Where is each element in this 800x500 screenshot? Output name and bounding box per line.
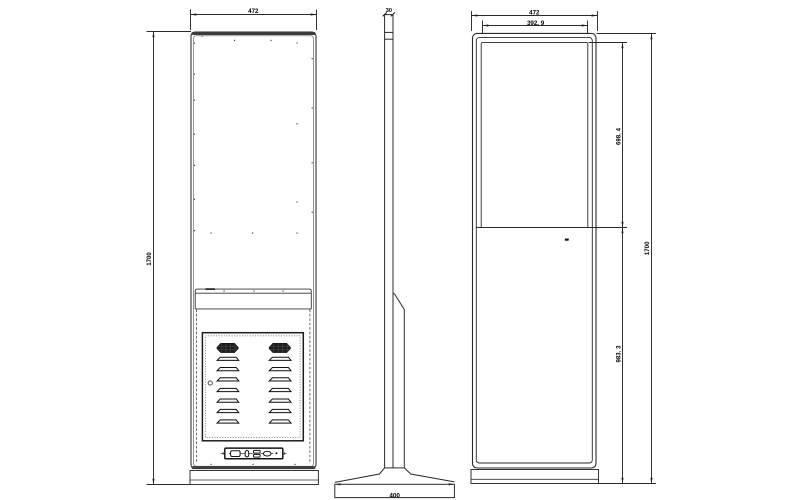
svg-text:1700: 1700 (146, 252, 153, 266)
svg-text:472: 472 (529, 10, 540, 17)
svg-text:698. 4: 698. 4 (616, 127, 623, 145)
svg-text:472: 472 (248, 8, 259, 15)
svg-text:392. 9: 392. 9 (527, 20, 545, 27)
svg-text:400: 400 (389, 492, 400, 499)
svg-text:1700: 1700 (644, 241, 651, 255)
svg-text:983. 3: 983. 3 (616, 345, 623, 363)
